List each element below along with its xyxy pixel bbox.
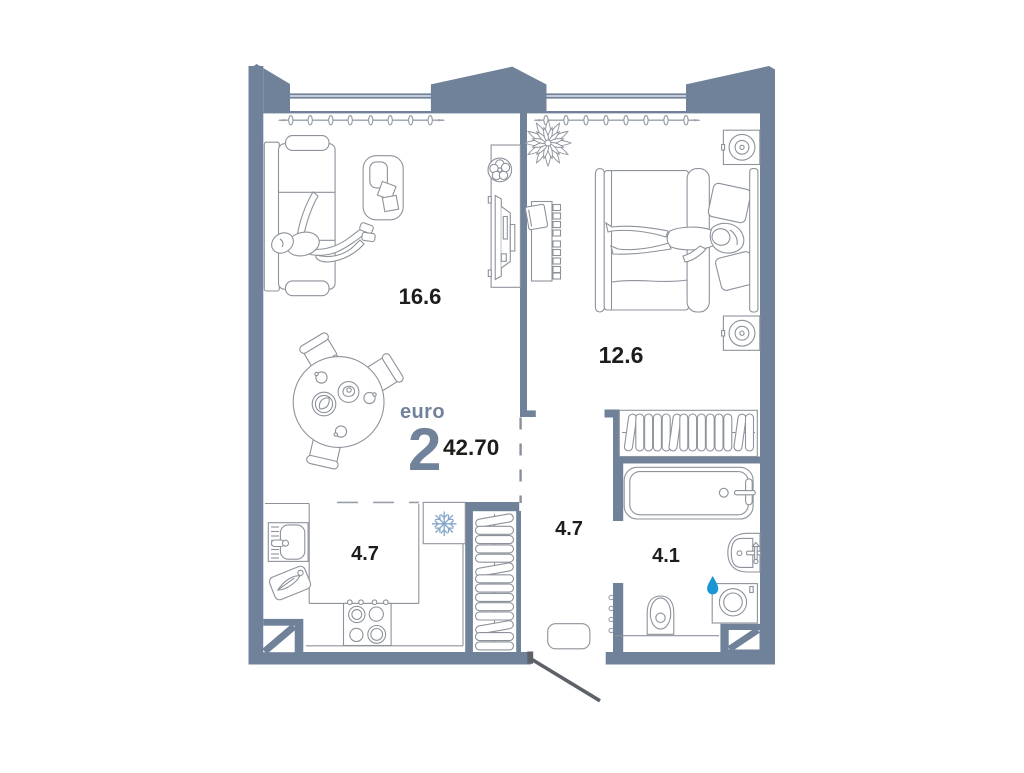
svg-text:12.6: 12.6 (599, 342, 644, 368)
svg-text:4.7: 4.7 (351, 543, 379, 565)
svg-text:42.70: 42.70 (443, 435, 499, 460)
svg-text:4.7: 4.7 (555, 518, 583, 540)
svg-text:4.1: 4.1 (652, 545, 680, 567)
svg-text:16.6: 16.6 (399, 284, 442, 309)
svg-text:2: 2 (408, 416, 441, 483)
